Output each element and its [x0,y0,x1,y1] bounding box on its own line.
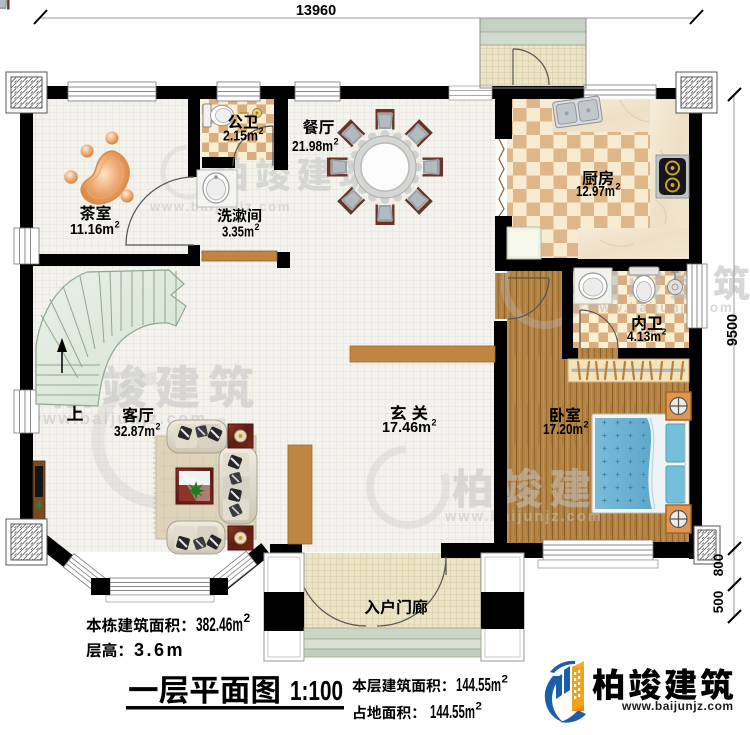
svg-text:2: 2 [476,701,482,713]
svg-text:17.20m: 17.20m [543,422,583,438]
svg-text:32.87m: 32.87m [114,424,155,440]
svg-text:2: 2 [662,327,667,337]
svg-text:2: 2 [115,219,120,229]
svg-text:www.baijunjz.com: www.baijunjz.com [444,509,603,525]
svg-text:17.46m: 17.46m [382,420,431,436]
svg-text:4.13m: 4.13m [627,328,661,344]
svg-text:2: 2 [334,136,339,146]
svg-text:9500: 9500 [725,314,741,346]
svg-text:13960: 13960 [296,3,336,19]
svg-text:1:100: 1:100 [290,675,343,706]
svg-text:2.15m: 2.15m [223,129,258,145]
svg-text:2: 2 [244,611,251,625]
svg-text:2: 2 [255,222,260,232]
svg-text:www.baijunjz.com: www.baijunjz.com [621,699,734,713]
svg-text:2: 2 [584,419,589,429]
svg-text:2: 2 [432,417,437,427]
svg-text:144.55m: 144.55m [430,701,475,722]
svg-text:3.6m: 3.6m [134,640,185,660]
svg-text:382.46m: 382.46m [196,614,243,636]
svg-text:800: 800 [711,554,726,577]
svg-text:2: 2 [259,126,264,136]
svg-text:3.35m: 3.35m [222,225,254,241]
svg-text:2: 2 [502,674,508,686]
svg-text:12.97m: 12.97m [576,184,615,200]
svg-text:2: 2 [156,421,161,431]
svg-text:144.55m: 144.55m [456,674,501,695]
svg-text:2: 2 [616,181,621,191]
svg-text:500: 500 [711,591,726,614]
svg-text:11.16m: 11.16m [70,221,114,238]
svg-text:21.98m: 21.98m [292,138,333,155]
